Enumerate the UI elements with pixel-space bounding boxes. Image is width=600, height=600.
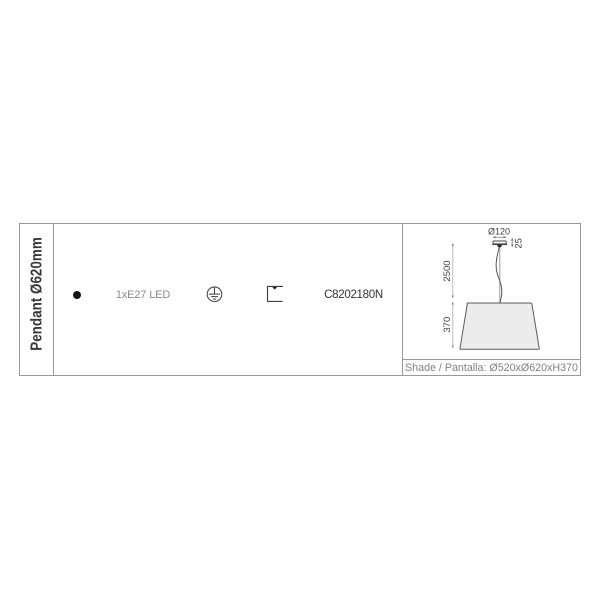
svg-text:2500: 2500 — [442, 260, 453, 281]
svg-text:25: 25 — [514, 238, 525, 249]
svg-text:370: 370 — [442, 317, 453, 333]
svg-text:Ø120: Ø120 — [488, 227, 510, 237]
